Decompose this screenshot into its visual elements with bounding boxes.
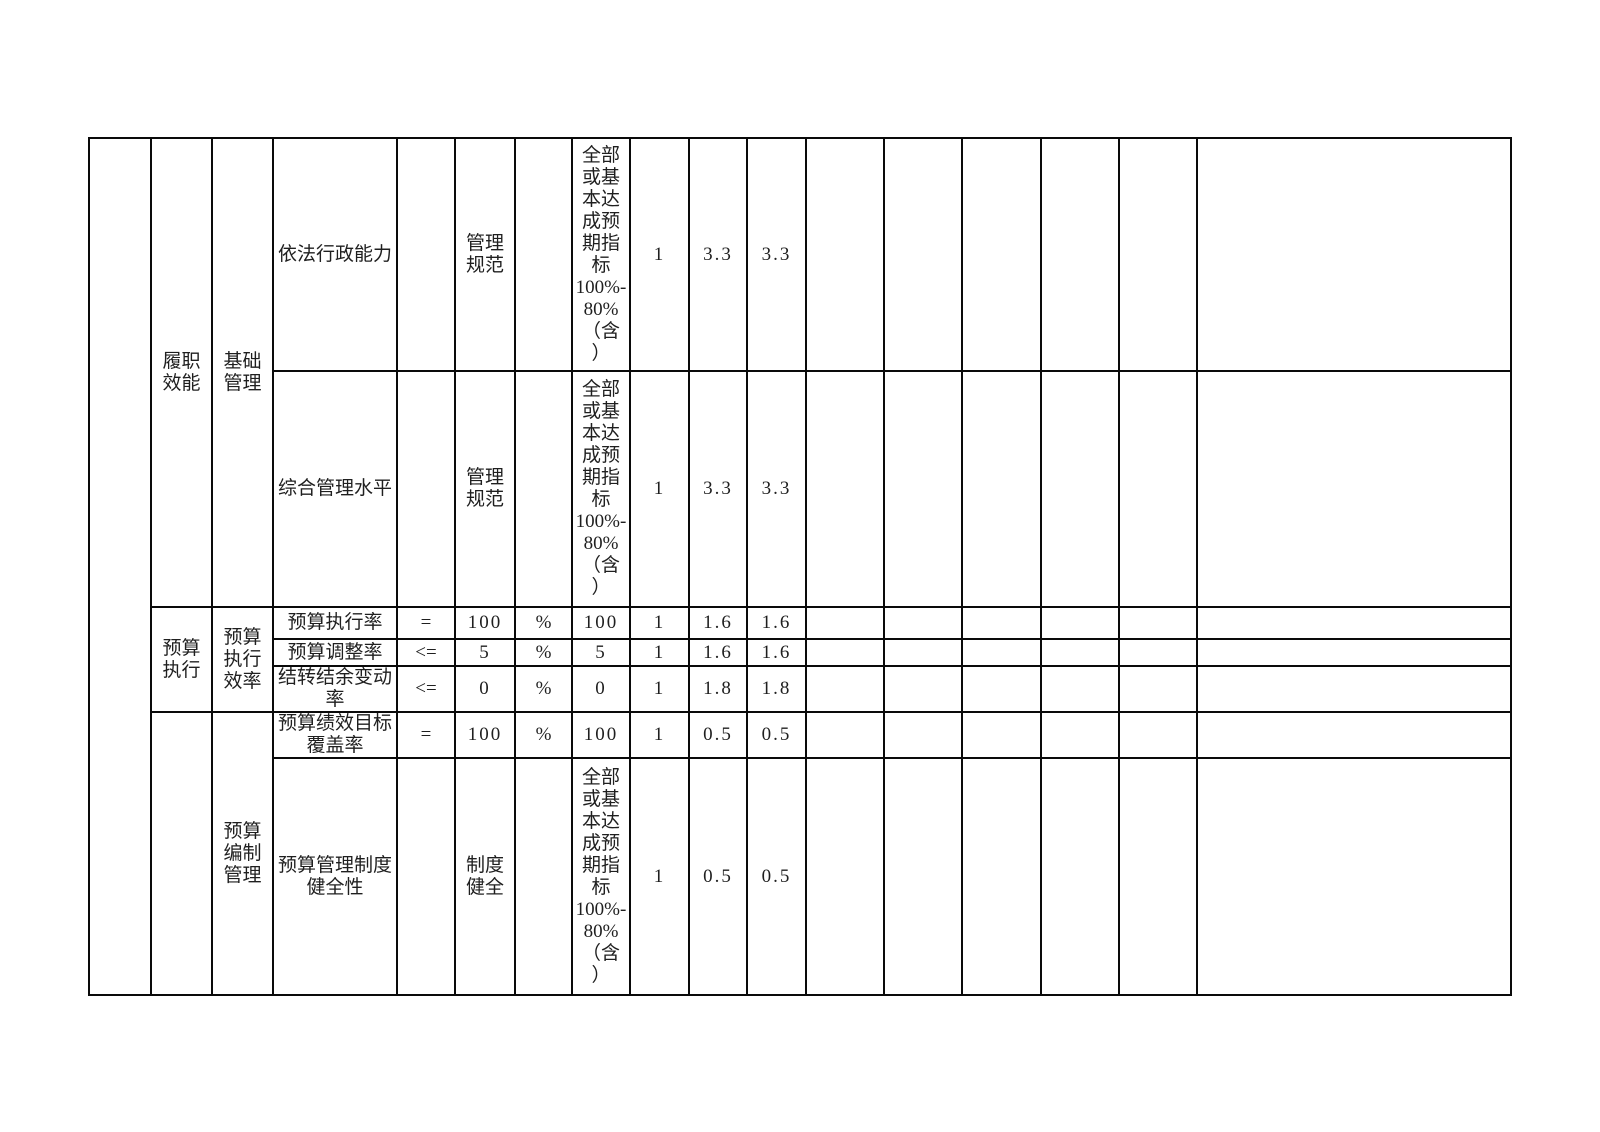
cell-score-a: 1.6: [689, 639, 747, 666]
cell-indicator: 依法行政能力: [273, 138, 397, 371]
cell-value: 0: [455, 666, 515, 712]
cell-category-l2: 预算 编制 管理: [212, 712, 273, 995]
cell-weight: 1: [630, 607, 689, 639]
cell-score-b: 1.6: [747, 639, 806, 666]
cell-indicator: 预算绩效目标 覆盖率: [273, 712, 397, 758]
cell-criteria: 全部 或基 本达 成预 期指 标 100%- 80% （含 ）: [572, 371, 630, 607]
cell-weight: 1: [630, 666, 689, 712]
cell-unit: [515, 758, 572, 995]
cell-criteria: 100: [572, 607, 630, 639]
cell-empty: [1119, 371, 1197, 607]
cell-empty: [962, 639, 1041, 666]
cell-unit: [515, 138, 572, 371]
cell-value: 制度 健全: [455, 758, 515, 995]
cell-operator: =: [397, 607, 455, 639]
cell-empty: [962, 758, 1041, 995]
cell-empty: [806, 138, 884, 371]
cell-empty: [884, 607, 962, 639]
cell-empty: [962, 666, 1041, 712]
cell-weight: 1: [630, 639, 689, 666]
cell-category-l1: [151, 712, 212, 995]
cell-criteria: 100: [572, 712, 630, 758]
cell-empty: [1197, 607, 1511, 639]
cell-empty: [1197, 712, 1511, 758]
cell-value: 管理 规范: [455, 371, 515, 607]
cell-value: 管理 规范: [455, 138, 515, 371]
cell-operator: <=: [397, 666, 455, 712]
cell-empty: [962, 712, 1041, 758]
cell-empty: [806, 758, 884, 995]
cell-value: 100: [455, 607, 515, 639]
cell-unit: %: [515, 607, 572, 639]
cell-empty: [1041, 712, 1119, 758]
cell-weight: 1: [630, 712, 689, 758]
cell-empty: [884, 138, 962, 371]
cell-criteria: 5: [572, 639, 630, 666]
cell-weight: 1: [630, 138, 689, 371]
cell-empty: [884, 712, 962, 758]
cell-empty: [884, 758, 962, 995]
cell-category-l2: 基础 管理: [212, 138, 273, 607]
cell-empty: [1041, 607, 1119, 639]
cell-weight: 1: [630, 371, 689, 607]
cell-score-b: 3.3: [747, 371, 806, 607]
cell-score-a: 0.5: [689, 712, 747, 758]
cell-indicator: 结转结余变动 率: [273, 666, 397, 712]
cell-unit: [515, 371, 572, 607]
cell-category-l1: 履职 效能: [151, 138, 212, 607]
cell-empty: [1197, 371, 1511, 607]
cell-score-a: 3.3: [689, 138, 747, 371]
cell-empty: [962, 138, 1041, 371]
cell-indicator: 预算调整率: [273, 639, 397, 666]
cell-score-a: 1.8: [689, 666, 747, 712]
cell-empty: [1197, 138, 1511, 371]
cell-empty: [1197, 666, 1511, 712]
cell-criteria: 0: [572, 666, 630, 712]
cell-empty: [884, 371, 962, 607]
cell-empty: [1197, 758, 1511, 995]
cell-unit: %: [515, 666, 572, 712]
cell-empty: [962, 607, 1041, 639]
cell-empty: [1041, 666, 1119, 712]
cell-criteria: 全部 或基 本达 成预 期指 标 100%- 80% （含 ）: [572, 138, 630, 371]
cell-category-l1: 预算 执行: [151, 607, 212, 712]
cell-empty: [884, 666, 962, 712]
cell-empty: [806, 639, 884, 666]
cell-empty: [1119, 712, 1197, 758]
cell-empty: [1041, 758, 1119, 995]
cell-value: 5: [455, 639, 515, 666]
cell-criteria: 全部 或基 本达 成预 期指 标 100%- 80% （含 ）: [572, 758, 630, 995]
cell-empty: [1041, 138, 1119, 371]
cell-empty: [1119, 639, 1197, 666]
document-page: 履职 效能 基础 管理 依法行政能力 管理 规范 全部 或基 本达 成预 期指 …: [0, 0, 1600, 1132]
cell-category-l2: 预算 执行 效率: [212, 607, 273, 712]
cell-operator: [397, 371, 455, 607]
cell-score-a: 0.5: [689, 758, 747, 995]
cell-value: 100: [455, 712, 515, 758]
cell-score-b: 1.6: [747, 607, 806, 639]
cell-empty: [806, 607, 884, 639]
cell-score-b: 0.5: [747, 712, 806, 758]
cell-indicator: 预算管理制度 健全性: [273, 758, 397, 995]
cell-empty: [806, 666, 884, 712]
cell-empty: [806, 371, 884, 607]
performance-indicator-table: 履职 效能 基础 管理 依法行政能力 管理 规范 全部 或基 本达 成预 期指 …: [88, 137, 1512, 996]
cell-indicator: 综合管理水平: [273, 371, 397, 607]
cell-weight: 1: [630, 758, 689, 995]
cell-score-a: 3.3: [689, 371, 747, 607]
cell-empty: [1197, 639, 1511, 666]
cell-empty: [806, 712, 884, 758]
cell-unit: %: [515, 639, 572, 666]
cell-empty: [1041, 371, 1119, 607]
cell-empty: [1119, 138, 1197, 371]
cell-operator: =: [397, 712, 455, 758]
cell-empty: [1119, 666, 1197, 712]
cell-empty: [1119, 607, 1197, 639]
cell-score-b: 1.8: [747, 666, 806, 712]
cell-empty: [1041, 639, 1119, 666]
cell-empty: [962, 371, 1041, 607]
cell-score-a: 1.6: [689, 607, 747, 639]
cell-score-b: 3.3: [747, 138, 806, 371]
cell-blank-left-column: [89, 138, 151, 995]
cell-empty: [884, 639, 962, 666]
cell-operator: [397, 138, 455, 371]
cell-unit: %: [515, 712, 572, 758]
cell-score-b: 0.5: [747, 758, 806, 995]
cell-empty: [1119, 758, 1197, 995]
cell-indicator: 预算执行率: [273, 607, 397, 639]
cell-operator: [397, 758, 455, 995]
cell-operator: <=: [397, 639, 455, 666]
